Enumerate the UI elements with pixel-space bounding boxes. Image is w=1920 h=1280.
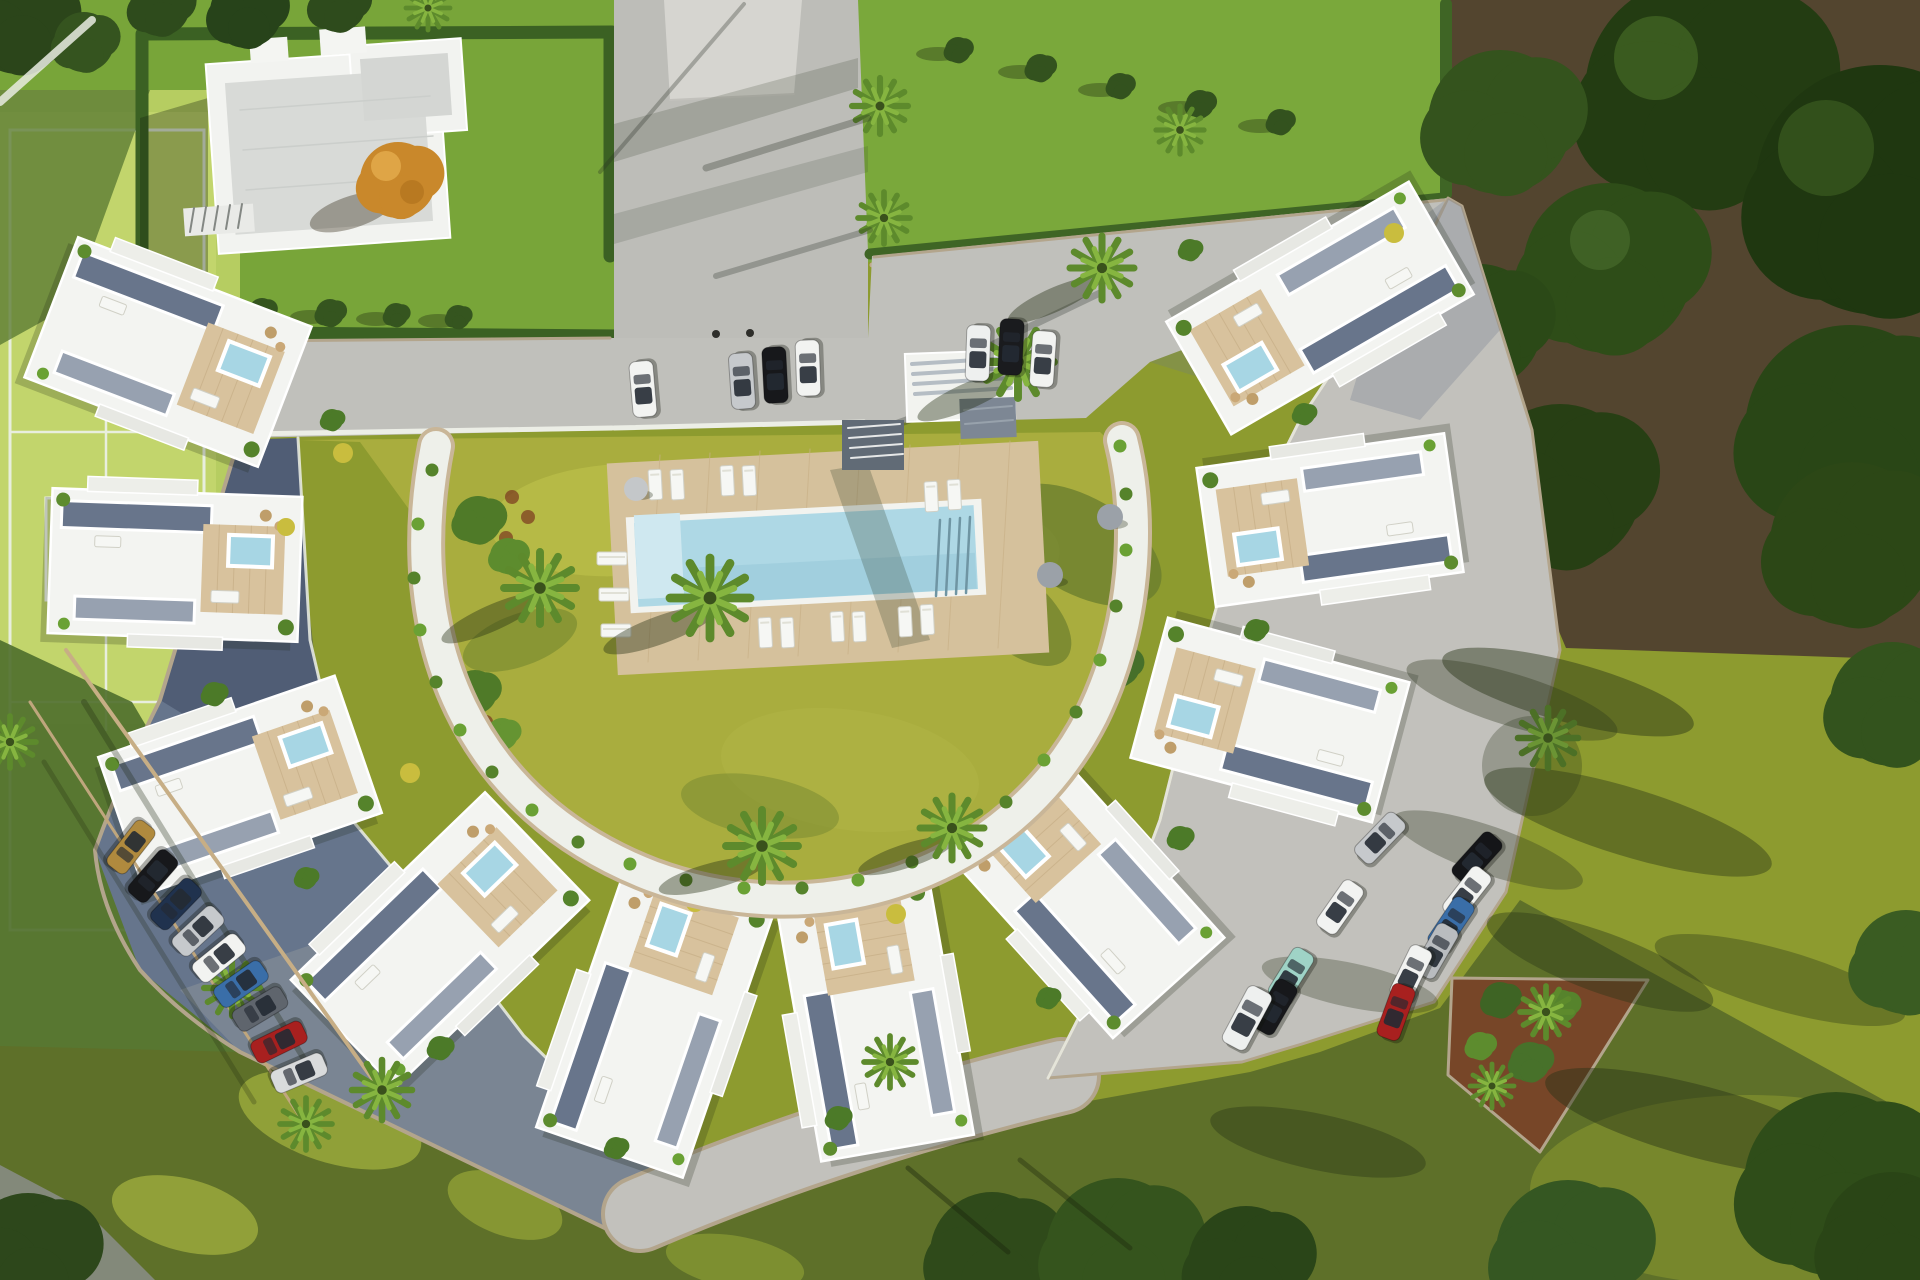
canopy-highlight [1614, 16, 1698, 100]
sun-lounger [780, 617, 795, 648]
villa-block [40, 475, 303, 653]
sun-lounger [924, 481, 939, 512]
parked-car-silver [728, 350, 760, 412]
pool-steps [634, 513, 684, 599]
sun-lounger [920, 604, 935, 635]
sun-lounger [597, 552, 627, 565]
parked-car-white [1029, 328, 1061, 390]
canopy-highlight [1778, 100, 1874, 196]
round-table [1037, 562, 1063, 588]
orange-tree-highlight [371, 151, 401, 181]
round-table [1097, 504, 1123, 530]
villa-roof [360, 53, 452, 121]
mulch-bed [505, 490, 519, 504]
sun-lounger [758, 617, 773, 648]
sun-lounger [742, 465, 757, 496]
sun-lounger [830, 611, 845, 642]
canopy-highlight [1570, 210, 1630, 270]
yellow-bush [400, 763, 420, 783]
parked-car-black [761, 344, 792, 405]
sun-lounger [947, 479, 962, 510]
yellow-bush [333, 443, 353, 463]
sun-lounger [599, 588, 629, 601]
sun-lounger [670, 469, 685, 500]
scene-svg [0, 0, 1920, 1280]
aerial-render-residential-complex [0, 0, 1920, 1280]
yellow-bush [1384, 223, 1404, 243]
orange-tree-shade [400, 180, 424, 204]
parked-car-white [965, 323, 995, 384]
yellow-bush [886, 904, 906, 924]
sun-lounger [852, 611, 867, 642]
bollard [746, 329, 754, 337]
round-table [624, 477, 648, 501]
sun-lounger [898, 606, 913, 637]
parked-car-black [997, 316, 1028, 377]
mulch-bed [521, 510, 535, 524]
parked-car-white [628, 358, 661, 420]
bollard [712, 330, 720, 338]
sun-lounger [720, 465, 735, 496]
parked-car-white [795, 337, 825, 398]
yellow-bush [277, 518, 295, 536]
